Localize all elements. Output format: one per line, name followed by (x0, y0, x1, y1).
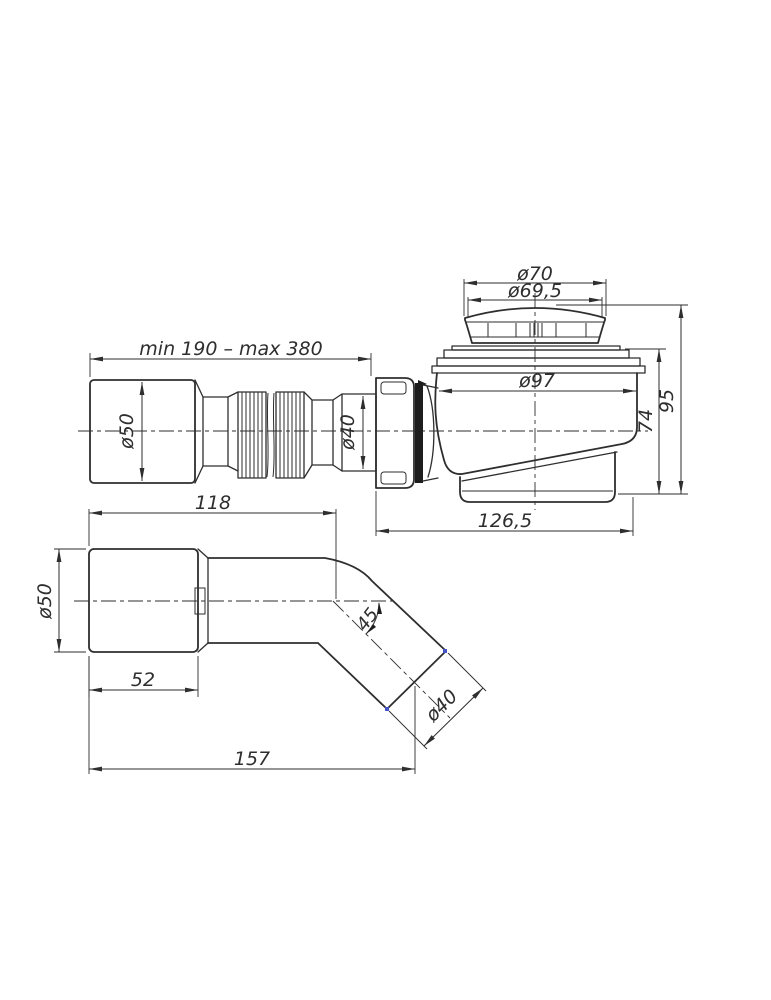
dim-body-length: 126,5 (376, 491, 633, 536)
dim-outlet-diameter: ø40 (389, 653, 486, 749)
dim-label-outlet-diameter: ø40 (421, 685, 463, 727)
inlet-throat-curve (427, 386, 434, 477)
clamp-flange (432, 346, 645, 373)
elbow-view: 118 ø50 52 45 ø40 (34, 492, 486, 774)
dim-label-flex-length: min 190 – max 380 (139, 338, 322, 360)
dim-socket-diameter: ø50 (34, 549, 86, 652)
dim-label-body-height: 74 (635, 409, 657, 433)
corrugated-hose (228, 392, 333, 478)
drain-assembly-drawing: ø70 ø69,5 min 190 – max 380 ø50 ø40 ø97 (0, 0, 771, 1000)
dim-label-cap-inner-diameter: ø69,5 (507, 280, 562, 302)
dim-flex-length: min 190 – max 380 (90, 338, 371, 377)
dim-label-straight-length: 118 (195, 492, 231, 514)
dim-label-total-height: 95 (656, 389, 678, 413)
cap-ribs (488, 323, 586, 337)
vertex-marker-top (443, 649, 447, 653)
dim-straight-length: 118 (89, 492, 336, 599)
dim-bend-angle: 45 (352, 602, 383, 635)
hose-tail-pipe (312, 400, 333, 465)
dim-label-inlet-diameter: ø50 (116, 413, 138, 450)
compression-nut (376, 378, 414, 488)
dim-label-total-length: 157 (234, 748, 270, 770)
dim-hose-diameter: ø40 (337, 396, 363, 469)
dim-label-body-length: 126,5 (478, 510, 532, 532)
dim-label-body-diameter: ø97 (518, 370, 555, 392)
side-view: ø70 ø69,5 min 190 – max 380 ø50 ø40 ø97 (78, 263, 688, 536)
dim-label-socket-length: 52 (131, 669, 155, 691)
vertex-marker-bottom (385, 707, 389, 711)
seal-gasket (415, 383, 423, 483)
elbow-pipe (208, 558, 447, 711)
dim-label-socket-diameter: ø50 (34, 583, 56, 620)
dim-socket-length: 52 (89, 656, 198, 697)
elbow-socket (89, 549, 208, 652)
inlet-cylinder (90, 380, 228, 483)
technical-drawing-canvas: ø70 ø69,5 min 190 – max 380 ø50 ø40 ø97 (0, 0, 771, 1000)
dim-total-height: 95 (556, 305, 688, 494)
dim-inlet-diameter: ø50 (116, 382, 142, 481)
dim-label-hose-diameter: ø40 (337, 414, 359, 451)
hose-break-lines (267, 393, 274, 477)
